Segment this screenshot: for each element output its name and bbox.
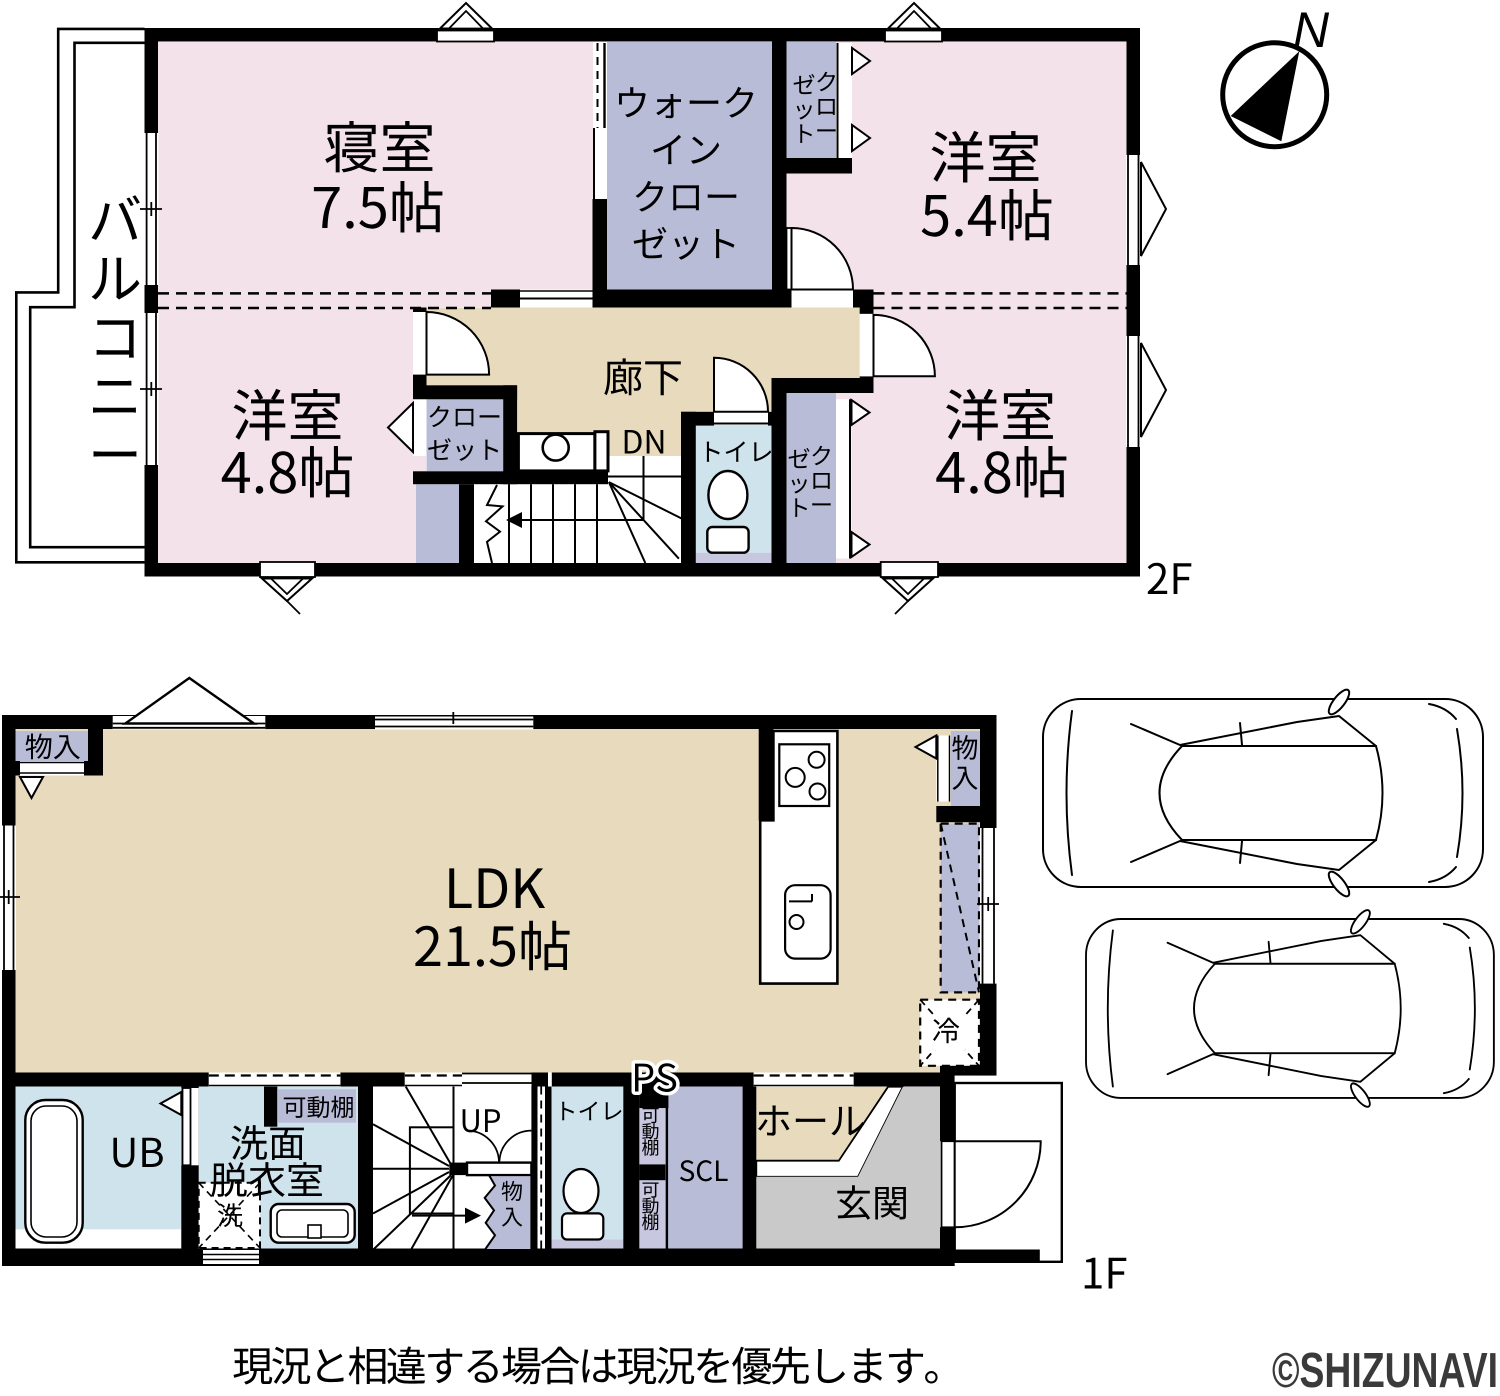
svg-text:N: N <box>1293 2 1330 58</box>
svg-text:©SHIZUNAVI: ©SHIZUNAVI <box>1272 1344 1498 1396</box>
